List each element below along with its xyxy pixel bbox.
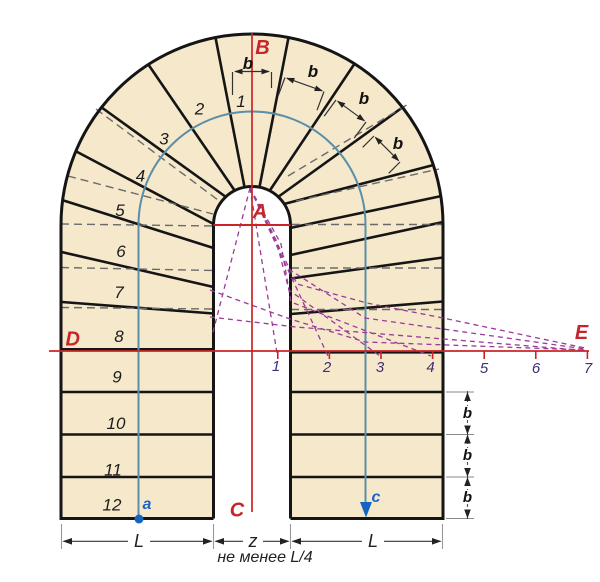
svg-text:a: a <box>143 496 152 513</box>
svg-text:L: L <box>134 531 144 551</box>
svg-text:b: b <box>243 54 253 73</box>
svg-text:b: b <box>463 489 472 506</box>
svg-text:2: 2 <box>194 100 205 119</box>
svg-text:B: B <box>255 37 269 59</box>
svg-text:A: A <box>252 201 267 223</box>
svg-text:9: 9 <box>112 368 122 387</box>
svg-text:6: 6 <box>532 360 541 377</box>
svg-text:b: b <box>359 89 369 108</box>
svg-text:8: 8 <box>114 327 124 346</box>
svg-text:b: b <box>393 134 403 153</box>
svg-text:z: z <box>248 531 258 551</box>
svg-text:b: b <box>463 405 472 422</box>
svg-text:b: b <box>308 62 318 81</box>
svg-text:3: 3 <box>376 359 385 376</box>
svg-text:E: E <box>575 322 589 344</box>
svg-text:10: 10 <box>107 414 126 433</box>
svg-text:C: C <box>230 500 245 522</box>
svg-text:12: 12 <box>103 496 122 515</box>
svg-text:3: 3 <box>159 130 169 149</box>
svg-text:1: 1 <box>236 92 245 111</box>
svg-text:2: 2 <box>322 359 332 376</box>
svg-text:4: 4 <box>136 167 145 186</box>
svg-text:5: 5 <box>480 360 489 377</box>
svg-text:не менее L/4: не менее L/4 <box>217 549 312 566</box>
svg-text:4: 4 <box>426 359 434 376</box>
svg-text:D: D <box>65 329 79 351</box>
svg-text:c: c <box>372 489 381 506</box>
svg-text:7: 7 <box>114 283 124 302</box>
svg-text:11: 11 <box>104 461 122 480</box>
svg-text:b: b <box>463 447 472 464</box>
svg-text:5: 5 <box>115 201 125 220</box>
svg-text:7: 7 <box>584 360 593 377</box>
svg-text:L: L <box>368 531 378 551</box>
svg-text:6: 6 <box>116 242 126 261</box>
svg-text:1: 1 <box>272 358 280 375</box>
